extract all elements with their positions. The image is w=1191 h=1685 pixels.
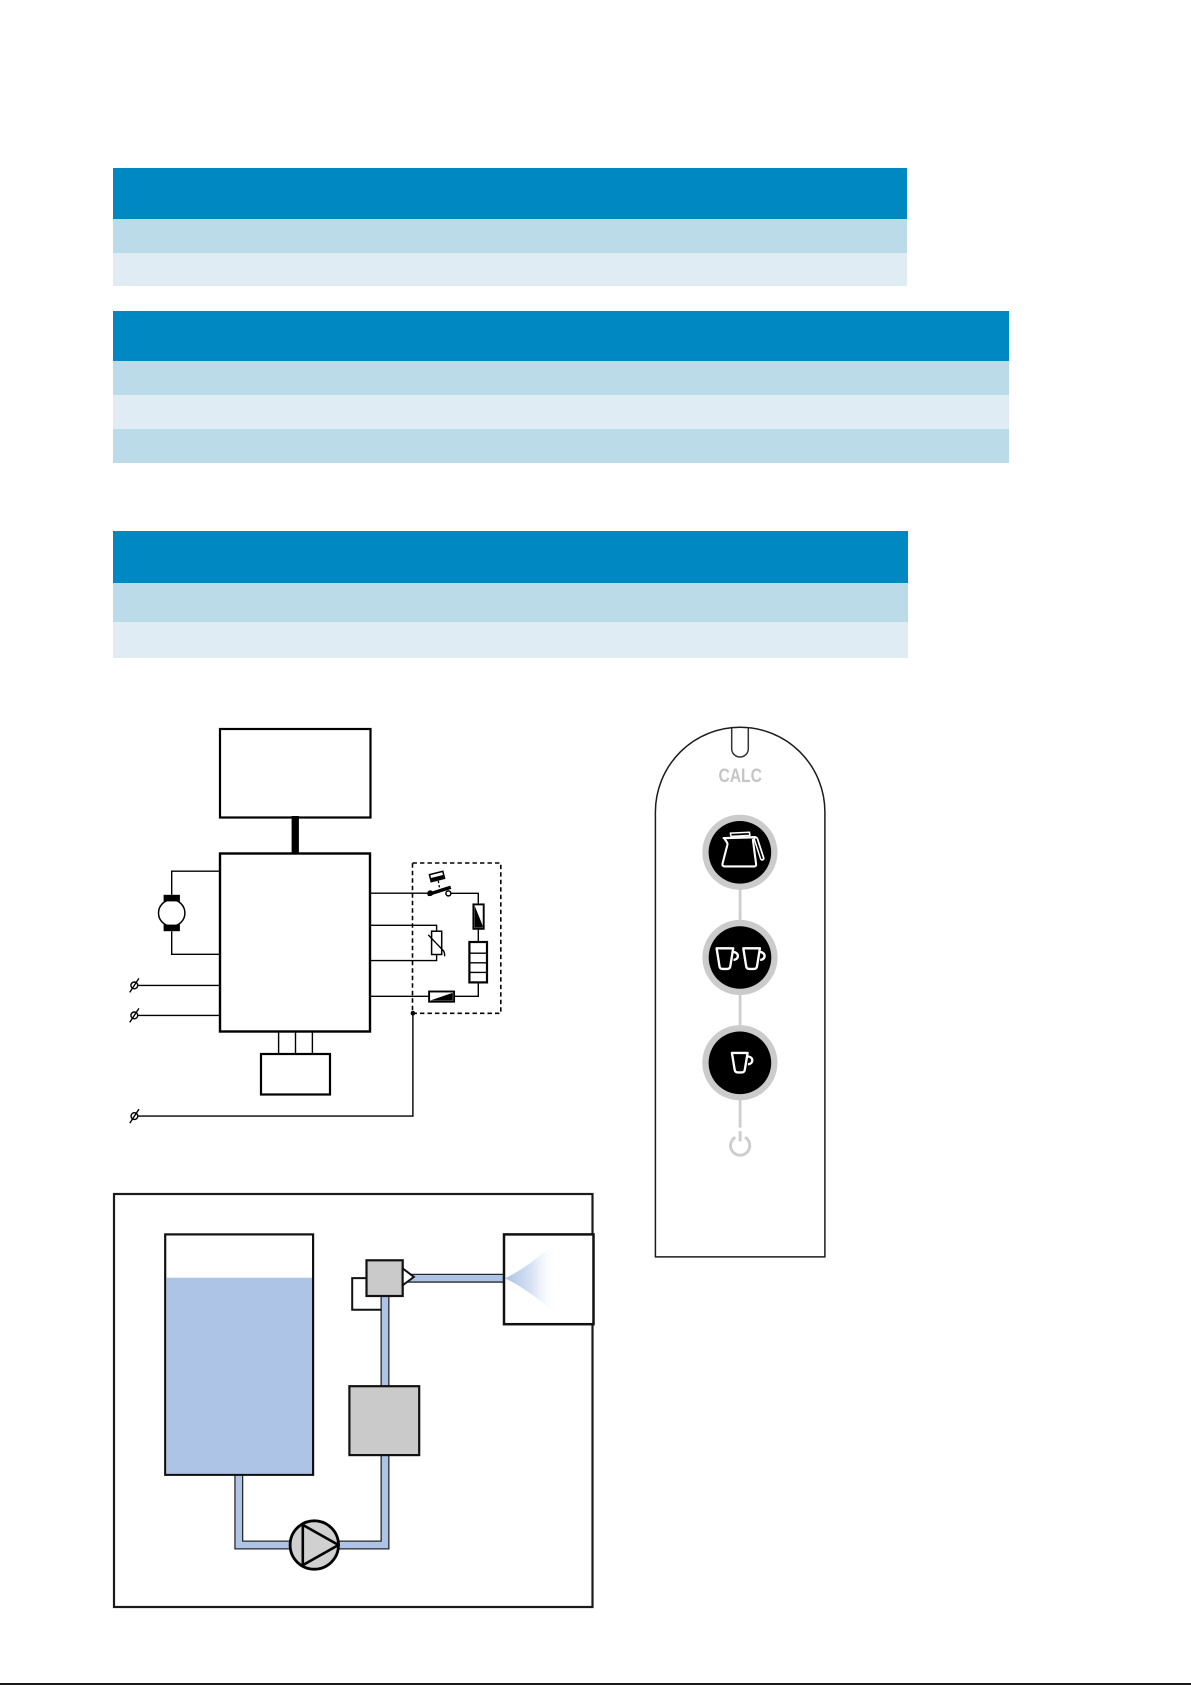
svg-text:CALC: CALC (718, 766, 762, 787)
